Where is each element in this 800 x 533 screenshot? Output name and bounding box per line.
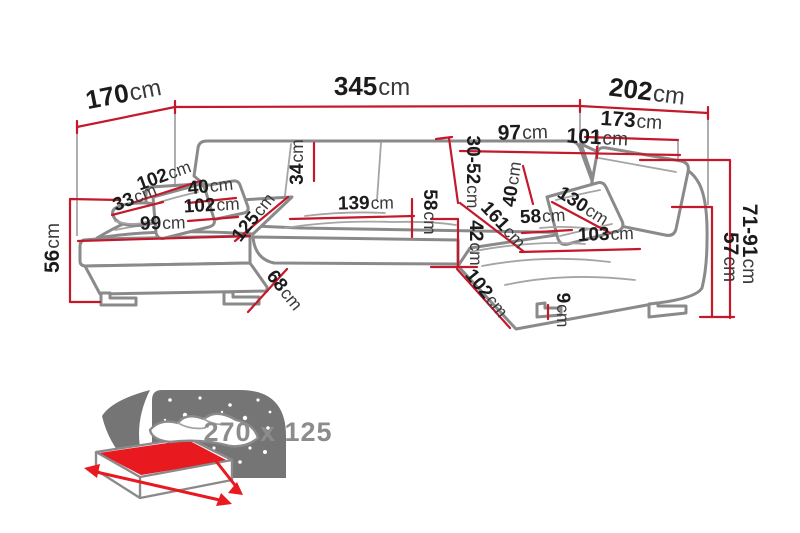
sofa-leg (649, 303, 686, 317)
dim-label-leg-height: 9cm (552, 293, 573, 328)
dim-label-center-seat-depth: 58cm (419, 189, 440, 234)
dim-label-total-width: 345cm (334, 71, 410, 101)
sofa-dimension-diagram: 170cm 345cm 202cm 173cm 97cm 101cm 30-52… (0, 0, 800, 533)
center-seat (253, 237, 458, 264)
left-chaise-base (85, 263, 267, 294)
dim-label-backrest-cushion-height: 34cm (287, 139, 308, 184)
dim-label-chaise-seat-width: 102cm (183, 194, 240, 218)
sofa-leg (224, 292, 259, 304)
dim-label-total-height: 71-91cm (738, 204, 761, 284)
dim-label-center-seat-width: 139cm (338, 193, 394, 215)
sleeping-area-label: 270 x 125 (203, 417, 332, 447)
dim-label-right-front-width: 103cm (577, 223, 634, 246)
dim-label-right-side-length: 202cm (607, 72, 686, 111)
dim-label-headrest-height: 30-52cm (462, 136, 483, 209)
diagram-canvas: 170cm 345cm 202cm 173cm 97cm 101cm 30-52… (0, 0, 800, 533)
dim-label-back-section-left: 97cm (497, 120, 548, 145)
dim-label-back-left-depth: 170cm (83, 71, 164, 115)
dim-label-seat-height: 42cm (465, 220, 486, 265)
dim-label-right-seat-depth: 58cm (519, 205, 565, 228)
dim-label-chaise-front-width: 99cm (140, 212, 186, 235)
dim-label-back-section-right: 101cm (566, 124, 629, 150)
dim-label-arm-height: 56cm (41, 223, 64, 273)
bed-size-icon: 270 x 125 (84, 390, 333, 506)
